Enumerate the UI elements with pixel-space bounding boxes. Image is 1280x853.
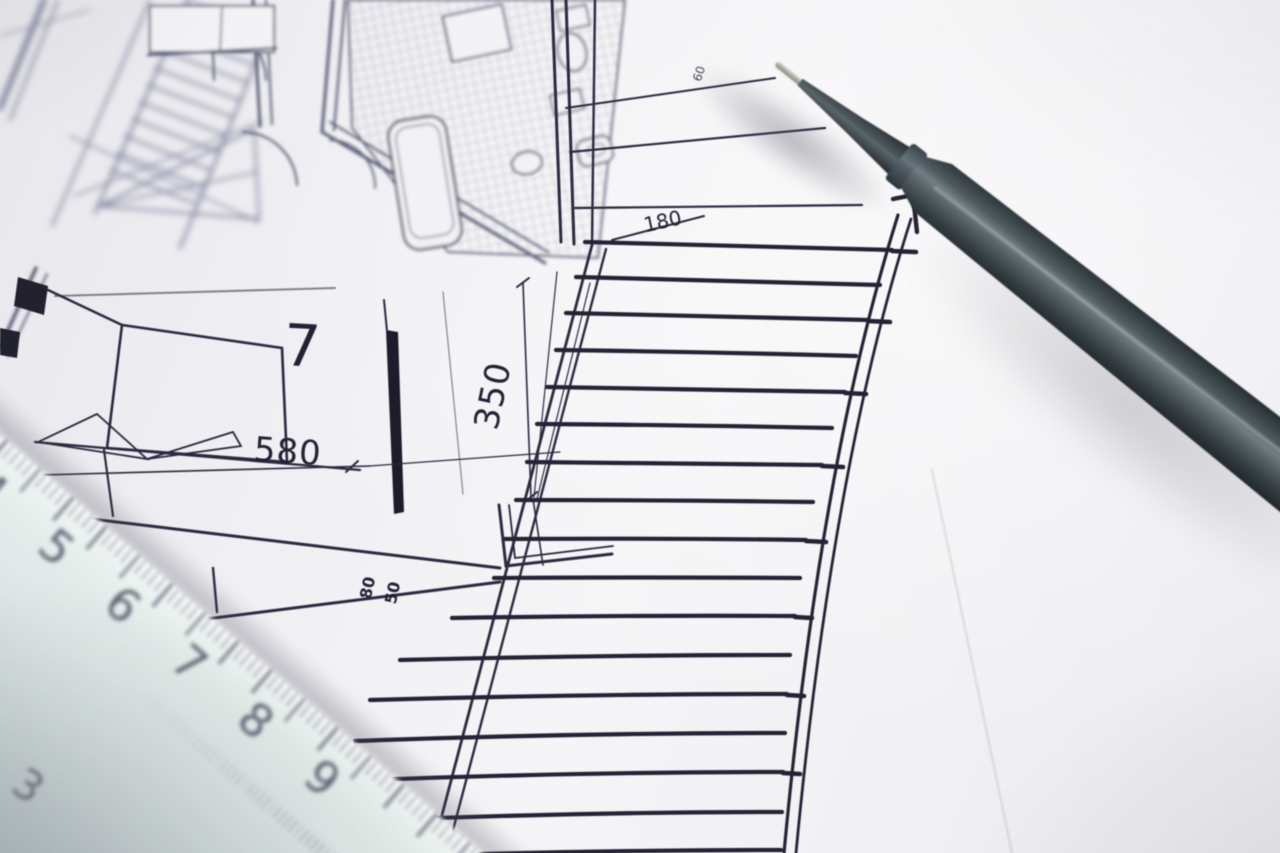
room-number-label: 7	[282, 311, 322, 381]
deck-rail-left	[432, 245, 592, 853]
door-swing-arc	[243, 132, 297, 185]
dimension-line-350	[523, 283, 531, 497]
deck-joist-stubs	[783, 251, 916, 774]
closet	[150, 6, 274, 52]
deck-rail-right	[784, 215, 898, 853]
dimension-180: 180	[641, 205, 683, 236]
paper-edge	[932, 470, 1012, 853]
dimension-580: 580	[253, 430, 324, 475]
dimension-350: 350	[467, 358, 520, 433]
wall-poche	[0, 328, 20, 358]
photo-scene: 7 580 350 80 50 180 60 4 5 6 7	[0, 0, 1280, 853]
dimension-50: 50	[381, 580, 404, 606]
stair-direction-line	[70, 136, 259, 222]
wall-poche	[386, 330, 404, 514]
bathroom-blurred	[0, 0, 625, 356]
